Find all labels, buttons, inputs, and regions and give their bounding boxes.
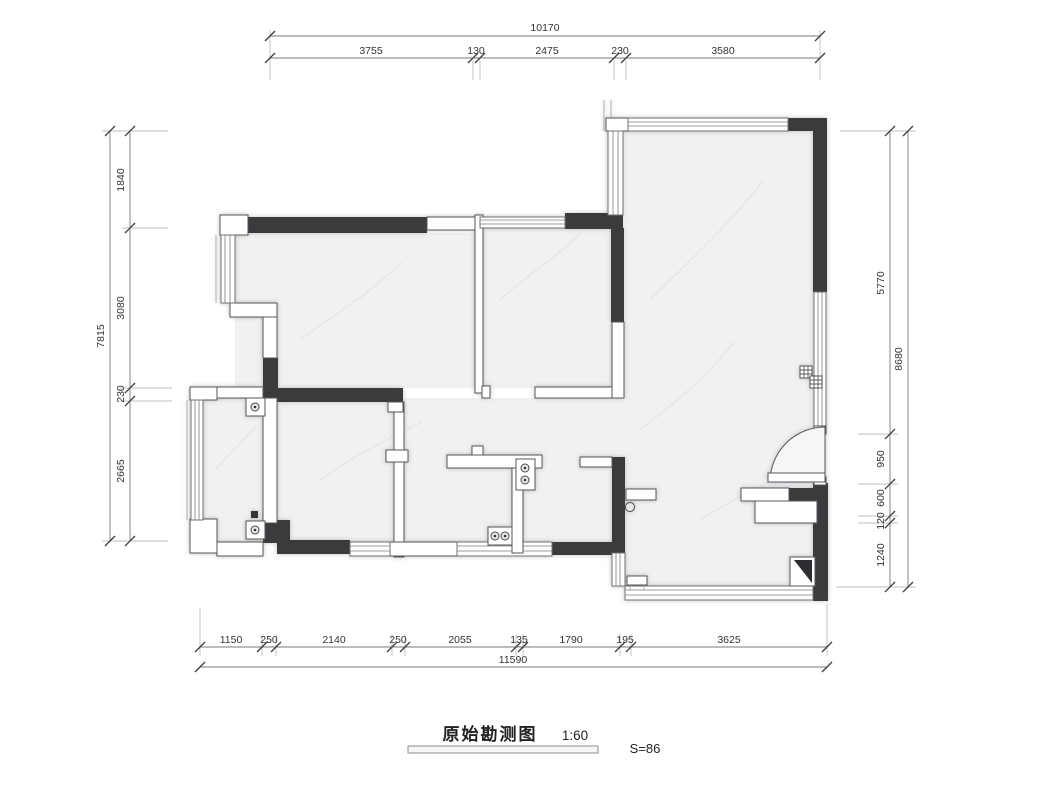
dimension-right: 8680 5770 950 600 120 1240 (836, 126, 916, 592)
dim-label: 195 (616, 634, 634, 646)
dim-label: 950 (875, 450, 887, 468)
dim-label: 2140 (322, 634, 346, 646)
dim-left-total: 7815 (95, 324, 107, 348)
wall-segment (263, 398, 277, 523)
window (814, 292, 826, 433)
bay-corner-block (606, 118, 628, 131)
wall-segment (394, 402, 404, 557)
window-sill (217, 542, 263, 556)
wall-segment (611, 228, 624, 322)
window-sill (390, 542, 457, 556)
window (625, 586, 813, 600)
title-block: 原始勘测图 1:60 S=86 (408, 724, 660, 756)
dim-label: 2665 (115, 459, 127, 483)
floor-plan-page: 10170 3755 130 2475 230 3580 7815 1840 3… (0, 0, 1042, 799)
dimension-bottom: 11590 1150 250 2140 250 2055 135 1790 19… (195, 604, 832, 672)
dim-label: 3580 (711, 45, 735, 57)
dim-label: 230 (611, 45, 629, 57)
wall-segment (263, 388, 403, 402)
window (604, 100, 623, 215)
dim-label: 120 (875, 512, 887, 530)
dim-label: 3755 (359, 45, 383, 57)
wall-end (482, 386, 490, 398)
dim-label: 1790 (559, 634, 583, 646)
partition-wall (475, 215, 483, 393)
window (480, 217, 565, 228)
wall-segment (277, 540, 350, 554)
bay-corner-block (190, 387, 217, 400)
dim-label: 3080 (115, 296, 127, 320)
dim-label: 230 (115, 385, 127, 403)
window-sill (230, 303, 277, 317)
wall-segment (263, 317, 277, 358)
drawing-scale: 1:60 (562, 728, 588, 743)
dim-top-total: 10170 (530, 22, 559, 34)
shaft-symbol (790, 557, 815, 586)
window (350, 542, 390, 556)
wall-segment (535, 387, 623, 398)
bay-corner-block (190, 519, 217, 553)
window (628, 118, 788, 131)
title-underline-bar (408, 746, 598, 753)
stove-symbol (516, 459, 535, 490)
dim-right-total: 8680 (893, 347, 905, 371)
bedroom-2-floor (482, 228, 612, 388)
door-hinge-symbol (246, 521, 265, 539)
door-hinge-symbol (246, 398, 265, 416)
dim-label: 250 (389, 634, 407, 646)
wall-segment (813, 118, 827, 292)
sink-symbol (488, 527, 512, 545)
wall-end (388, 402, 403, 412)
window (612, 553, 625, 586)
dim-bottom-total: 11590 (499, 654, 528, 666)
wall-segment (427, 217, 475, 230)
drain-symbol (251, 511, 258, 518)
wall-segment (217, 387, 263, 398)
window (216, 235, 235, 303)
dim-label: 135 (510, 634, 528, 646)
wall-segment (612, 322, 624, 398)
window (187, 400, 203, 520)
floor-plan-canvas: 10170 3755 130 2475 230 3580 7815 1840 3… (0, 0, 1042, 799)
wall-segment (552, 542, 612, 555)
cabinet (626, 489, 656, 500)
hinge-circle (626, 503, 635, 512)
wall-pier (386, 450, 408, 462)
dim-label: 2475 (535, 45, 559, 57)
dimension-left: 7815 1840 3080 230 2665 (95, 126, 172, 546)
dim-label: 1150 (220, 634, 243, 646)
dim-label: 5770 (875, 271, 887, 295)
drawing-title: 原始勘测图 (443, 724, 538, 744)
dim-label: 2055 (448, 634, 472, 646)
dim-label: 1240 (875, 543, 887, 567)
bay-corner-block (220, 215, 248, 235)
room-floors (203, 131, 813, 586)
passage-floor (610, 398, 628, 459)
dim-label: 600 (875, 489, 887, 507)
area-label: S=86 (630, 741, 661, 756)
wall-segment (248, 217, 427, 233)
cabinet (580, 457, 612, 467)
dim-label: 130 (467, 45, 485, 57)
dim-label: 3625 (717, 634, 741, 646)
dim-label: 250 (260, 634, 278, 646)
door-leaf (768, 473, 825, 482)
dimension-top: 10170 3755 130 2475 230 3580 (265, 22, 825, 80)
dim-label: 1840 (115, 168, 127, 192)
wall-segment (612, 457, 625, 553)
